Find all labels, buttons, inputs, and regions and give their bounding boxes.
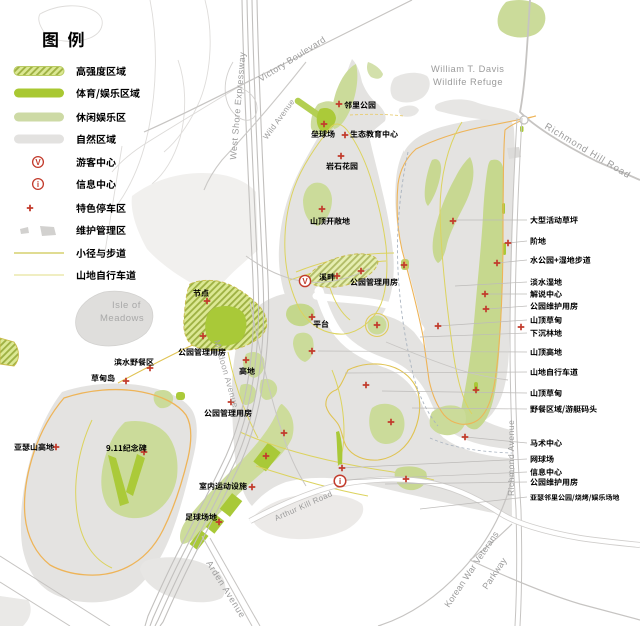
- svg-text:Meadows: Meadows: [100, 313, 144, 324]
- svg-text:V: V: [35, 158, 41, 167]
- svg-text:Wildlife Refuge: Wildlife Refuge: [433, 77, 503, 87]
- svg-text:Isle of: Isle of: [112, 300, 141, 311]
- svg-text:V: V: [302, 277, 308, 286]
- svg-text:i: i: [37, 180, 39, 189]
- svg-text:i: i: [339, 476, 341, 486]
- svg-text:William T. Davis: William T. Davis: [431, 64, 504, 74]
- svg-text:Richmond Avenue: Richmond Avenue: [506, 420, 516, 496]
